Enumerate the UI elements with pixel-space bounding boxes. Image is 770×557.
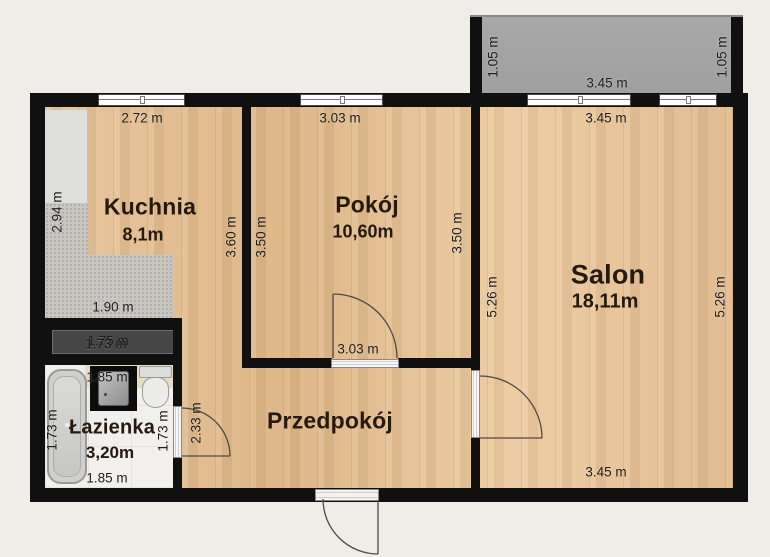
room-area-lazienka: 3,20m <box>86 443 134 463</box>
toilet-icon <box>139 366 172 410</box>
floor-plan: 2.72 m3.03 m3.45 m3.45 m1.05 m1.05 m2.94… <box>0 0 770 557</box>
door-frame-salon <box>471 370 480 438</box>
wall-salon-lower <box>471 438 480 488</box>
dimension-label: 1.90 m <box>92 300 133 315</box>
room-area-pokoj: 10,60m <box>332 222 393 243</box>
dimension-label: 3.50 m <box>450 212 465 253</box>
room-area-kuchnia: 8,1m <box>122 225 163 246</box>
wall-kitchen-pokoj <box>242 107 251 358</box>
door-arc-entrance <box>323 499 378 554</box>
room-name-kuchnia: Kuchnia <box>104 194 196 221</box>
room-name-przedpokoj: Przedpokój <box>267 408 393 435</box>
dimension-label: 3.45 m <box>585 465 626 480</box>
door-frame-pokoj <box>331 359 399 368</box>
room-name-salon: Salon <box>571 260 646 291</box>
dimension-label: 1.85 m <box>86 471 127 486</box>
dimension-label: 1.73 m <box>85 337 126 352</box>
balcony-wall-right <box>731 17 743 105</box>
dimension-label: 2.72 m <box>121 111 162 126</box>
window-pokoj <box>300 94 383 106</box>
wall-outer-bottom <box>30 488 748 502</box>
dimension-label: 3.03 m <box>319 111 360 126</box>
sink-faucet <box>104 393 107 396</box>
dimension-label: 1.85 m <box>86 370 127 385</box>
dimension-label: 2.33 m <box>189 402 204 443</box>
window-salon-small <box>659 94 717 106</box>
wall-salon-upper <box>471 107 480 370</box>
dimension-label: 3.03 m <box>337 342 378 357</box>
balcony-wall-left <box>470 17 482 105</box>
dimension-label: 3.45 m <box>586 76 627 91</box>
dimension-label: 1.73 m <box>156 410 171 451</box>
wall-bathroom-lower <box>173 456 182 488</box>
window-salon-balcony-door <box>527 94 631 106</box>
toilet-bowl <box>142 377 169 408</box>
dimension-label: 1.73 m <box>45 409 60 450</box>
dimension-label: 5.26 m <box>485 276 500 317</box>
wall-outer-right <box>733 93 748 502</box>
room-name-pokoj: Pokój <box>335 192 399 219</box>
room-area-salon: 18,11m <box>572 291 639 314</box>
dimension-label: 5.26 m <box>713 276 728 317</box>
wall-bathroom-upper <box>173 318 182 408</box>
wall-pokoj-bottom-left <box>242 358 332 368</box>
kitchen-counter-strip <box>45 110 88 203</box>
door-frame-bathroom <box>173 406 182 458</box>
wall-outer-left <box>30 93 45 502</box>
wall-pokoj-bottom-right <box>398 358 480 368</box>
dimension-label: 1.05 m <box>715 36 730 77</box>
dimension-label: 1.05 m <box>486 36 501 77</box>
door-frame-entrance <box>315 489 379 501</box>
room-name-lazienka: Łazienka <box>69 417 155 440</box>
dimension-label: 2.94 m <box>50 191 65 232</box>
dimension-label: 3.60 m <box>224 216 239 257</box>
dimension-label: 3.45 m <box>585 111 626 126</box>
balcony-slab <box>482 17 731 105</box>
window-kitchen <box>98 94 185 106</box>
dimension-label: 3.50 m <box>254 216 269 257</box>
